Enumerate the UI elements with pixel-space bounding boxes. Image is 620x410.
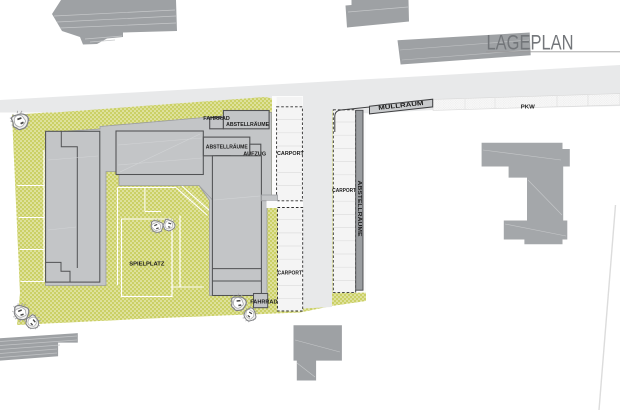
svg-text:ABSTELLRÄUME: ABSTELLRÄUME [206, 143, 248, 150]
svg-text:FAHRRAD: FAHRRAD [250, 300, 277, 306]
svg-text:CARPORT: CARPORT [278, 271, 303, 277]
svg-text:FAHRRAD: FAHRRAD [203, 116, 230, 122]
svg-text:CARPORT: CARPORT [332, 188, 356, 194]
svg-text:ABSTELLRÄUME: ABSTELLRÄUME [356, 181, 363, 237]
svg-text:SPIELPLATZ: SPIELPLATZ [129, 261, 165, 267]
svg-text:PKW: PKW [521, 104, 535, 110]
svg-text:ABSTELLRÄUME: ABSTELLRÄUME [226, 121, 269, 128]
svg-text:CARPORT: CARPORT [277, 151, 304, 157]
svg-text:LAGEPLAN: LAGEPLAN [487, 31, 574, 55]
